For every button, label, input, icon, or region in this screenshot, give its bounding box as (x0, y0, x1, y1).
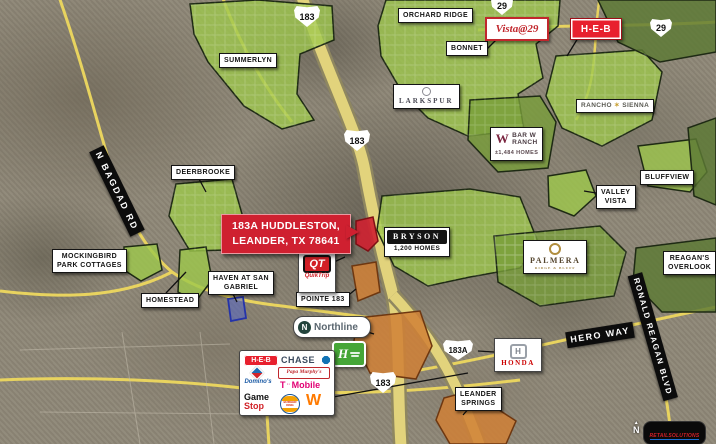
label-summerlyn: SUMMERLYN (219, 53, 277, 68)
holiday-inn-text-lines (350, 351, 360, 357)
bk-bottom-bun-icon (282, 408, 298, 412)
reagans-l2: OVERLOOK (668, 263, 711, 272)
right-edge-area (688, 118, 716, 205)
rancho-l1: RANCHO (581, 102, 612, 109)
mockingbird-l2: PARK COTTAGES (57, 261, 122, 270)
mockingbird-area (124, 244, 162, 281)
heb-logo-top: H-E-B (570, 18, 622, 40)
heb-wordmark: H-E-B (581, 24, 611, 35)
quiktrip-qt-icon: QT (303, 255, 330, 273)
larkspur-emblem-icon (422, 87, 431, 96)
label-bar-w-ranch: W BAR W RANCH ±1,484 HOMES (490, 127, 543, 161)
tmobile-wordmark: Mobile (292, 380, 321, 390)
chase-octagon-icon (322, 356, 330, 364)
subject-line1: 183A HUDDLESTON, (224, 219, 348, 234)
vista-29-wordmark: Vista@29 (496, 23, 539, 35)
watermark-brand: RETAILSOLUTIONS (650, 433, 700, 440)
label-reagans-overlook: REAGAN'S OVERLOOK (663, 251, 716, 275)
shield-number: 29 (656, 23, 666, 33)
honda-h-icon: H (510, 344, 527, 359)
leander-springs-l2: SPRINGS (460, 399, 497, 408)
street-texture (169, 0, 662, 306)
label-leander-springs: LEANDER SPRINGS (455, 387, 502, 411)
honda-logo: H HONDA (494, 338, 542, 372)
palmera-emblem-icon (549, 243, 561, 255)
label-homestead: HOMESTEAD (141, 293, 199, 308)
quiktrip-wordmark: QuikTrip (299, 273, 335, 279)
holiday-inn-express-logo: H (332, 341, 366, 367)
bar-w-homes: ±1,484 HOMES (495, 150, 538, 157)
subject-property-callout: 183A HUDDLESTON, LEANDER, TX 78641 (221, 214, 351, 254)
label-rancho-sienna: RANCHO ✶ SIENNA (576, 99, 654, 113)
label-haven-at-san-gabriel: HAVEN AT SAN GABRIEL (208, 271, 274, 295)
bryson-name: BRYSON (387, 230, 447, 244)
shield-number: 183 (299, 12, 314, 22)
label-larkspur: LARKSPUR (393, 84, 460, 109)
dominos-tile-icon (250, 366, 264, 380)
rancho-l2: SIENNA (622, 102, 649, 109)
watermark-oval: RETAILSOLUTIONS (643, 421, 707, 444)
chase-wordmark: CHASE (281, 355, 315, 365)
label-bonnet: BONNET (446, 41, 488, 56)
bk-wordmark: BURGERKING (281, 401, 299, 407)
label-pointe-183: POINTE 183 (296, 292, 350, 307)
north-arrow-icon: ▲N (633, 421, 640, 435)
heb-logo: H-E-B (244, 355, 278, 366)
northline-logo: N Northline (293, 316, 371, 338)
label-bryson: BRYSON 1,200 HOMES (384, 227, 450, 257)
bar-w-line1: BAR W (512, 132, 537, 140)
map-overlay-layer (0, 0, 716, 444)
subject-line2: LEANDER, TX 78641 (224, 234, 348, 249)
vista-29-logo: Vista@29 (485, 17, 549, 41)
retailer-panel: H-E-B CHASE Domino's Papa Murphy's T ·· … (239, 350, 335, 416)
watermark-logo: RETAILSOLUTIONS retailsolutions.us (643, 421, 707, 444)
papa-murphys-logo: Papa Murphy's (278, 367, 330, 379)
quiktrip-logo: QT QuikTrip (298, 251, 336, 293)
larkspur-name: LARKSPUR (399, 97, 454, 105)
label-orchard-ridge: ORCHARD RIDGE (398, 8, 473, 23)
label-mockingbird: MOCKINGBIRD PARK COTTAGES (52, 249, 127, 273)
holiday-inn-h-icon: H (338, 346, 348, 362)
label-valley-vista: VALLEY VISTA (596, 185, 636, 209)
northline-n-icon: N (298, 321, 311, 334)
shield-number: 29 (497, 1, 507, 11)
burger-king-logo: BURGERKING (280, 394, 300, 414)
whataburger-w-icon: W (306, 392, 321, 410)
valley-vista-l2: VISTA (601, 197, 631, 206)
label-palmera: PALMERA RIDGE & BLUFF (523, 240, 587, 274)
subject-pointer-icon (346, 225, 359, 239)
palmera-name: PALMERA (530, 256, 580, 265)
bar-w-monogram-icon: W (496, 131, 509, 148)
label-deerbrooke: DEERBROOKE (171, 165, 235, 180)
gamestop-logo: Game Stop (244, 393, 269, 410)
leander-springs-l1: LEANDER (460, 390, 497, 399)
aerial-map: 183 183 183 183A 29 29 N BAGDAD RD HERO … (0, 0, 716, 444)
valley-vista-l1: VALLEY (601, 188, 631, 197)
pointe-183-parcel (352, 262, 380, 301)
bryson-homes: 1,200 HOMES (387, 245, 447, 253)
tmobile-logo: T ·· Mobile (280, 380, 320, 390)
label-bluffview: BLUFFVIEW (640, 170, 694, 185)
reagans-l1: REAGAN'S (668, 254, 711, 263)
mockingbird-l1: MOCKINGBIRD (57, 252, 122, 261)
bar-w-line2: RANCH (512, 139, 537, 147)
gamestop-l2: Stop (244, 402, 269, 411)
shield-number: 183 (375, 378, 390, 388)
shield-number: 183 (349, 136, 364, 146)
palmera-sub: RIDGE & BLUFF (530, 266, 580, 271)
valley-vista-area (548, 170, 596, 216)
haven-l2: GABRIEL (213, 283, 269, 292)
shield-number: 183A (448, 346, 467, 355)
grey-streets (20, 332, 250, 444)
haven-l1: HAVEN AT SAN (213, 274, 269, 283)
northline-wordmark: Northline (314, 322, 358, 333)
dominos-wordmark: Domino's (242, 379, 274, 385)
rancho-star-icon: ✶ (614, 102, 620, 109)
papa-murphys-wordmark: Papa Murphy's (279, 368, 329, 376)
honda-wordmark: HONDA (495, 359, 541, 367)
watermark: ▲N RETAILSOLUTIONS retailsolutions.us (633, 421, 706, 444)
